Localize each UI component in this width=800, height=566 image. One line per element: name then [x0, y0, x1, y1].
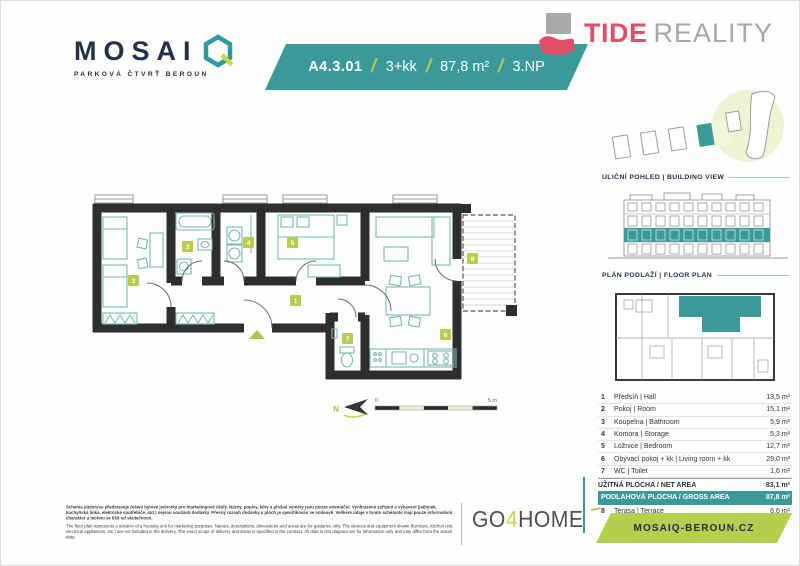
door-swings — [147, 259, 457, 328]
building-view-heading: ULIČNÍ POHLED | BUILDING VIEW — [602, 174, 790, 181]
site-plan-map — [606, 82, 788, 170]
svg-text:5 m: 5 m — [488, 398, 498, 404]
disclaimer-czech: Schéma půdorysu představuje řešení bytov… — [66, 505, 458, 522]
svg-text:0: 0 — [375, 398, 378, 404]
go4home-4: 4 — [506, 506, 518, 532]
unit-disposition: 3+kk — [386, 59, 417, 75]
mosaiq-wordmark: MOSAI — [74, 36, 198, 67]
table-row: 3Koupelna | Bathroom5,9 m² — [598, 417, 792, 429]
svg-text:6: 6 — [444, 332, 448, 339]
svg-text:2: 2 — [132, 278, 136, 285]
website-badge[interactable]: MOSAIQ-BEROUN.CZ — [596, 513, 792, 543]
furniture — [103, 213, 456, 367]
banner-separator: / — [423, 56, 433, 78]
disclaimer-english: The floor plan represents a solution of … — [66, 524, 458, 541]
unit-number: A4.3.01 — [308, 59, 362, 75]
unit-area: 87,8 m² — [440, 59, 489, 75]
svg-text:8: 8 — [471, 256, 475, 263]
table-row: 2Pokoj | Room15,1 m² — [598, 404, 792, 416]
north-arrow-icon: N — [333, 399, 368, 417]
banner-separator: / — [496, 56, 506, 78]
tide-reality-icon — [536, 10, 578, 56]
apartment-floor-plan: 1 2 3 4 5 6 7 8 N 0 5 m — [68, 181, 523, 421]
facade-window-marks — [95, 195, 437, 203]
mosaiq-subtitle: PARKOVÁ ČTVRŤ BEROUN — [74, 71, 233, 78]
room-badge-3: 3 — [182, 241, 193, 252]
table-row: 4Komora | Storage5,3 m² — [598, 429, 792, 441]
svg-text:N: N — [333, 405, 339, 414]
tide-reality-logo: TIDE REALITY — [536, 10, 773, 56]
table-row: 1Předsíň | Hall13,5 m² — [598, 392, 792, 404]
mosaiq-q-hexagon-icon — [203, 34, 233, 68]
banner-separator: / — [369, 56, 379, 78]
room-badge-5: 5 — [287, 237, 298, 248]
room-badge-2: 2 — [128, 275, 139, 286]
svg-text:3: 3 — [186, 244, 190, 251]
reality-text: REALITY — [654, 18, 774, 49]
scale-bar: 0 5 m — [375, 398, 497, 410]
svg-text:7: 7 — [346, 336, 350, 343]
disclaimer: Schéma půdorysu představuje řešení bytov… — [66, 505, 458, 541]
heading-rule — [717, 275, 790, 276]
floor-plan-heading: PLÁN PODLAŽÍ | FLOOR PLAN — [602, 272, 790, 279]
website-link[interactable]: MOSAIQ-BEROUN.CZ — [634, 523, 755, 534]
svg-text:1: 1 — [294, 298, 298, 305]
table-row: 6Obývací pokoj + kk | Living room + kk29… — [598, 453, 792, 465]
room-area-table: 1Předsíň | Hall13,5 m² 2Pokoj | Room15,1… — [598, 392, 792, 518]
mosaiq-logo: MOSAI PARKOVÁ ČTVRŤ BEROUN — [74, 34, 233, 78]
room-badge-6: 6 — [440, 329, 451, 340]
tide-text: TIDE — [584, 18, 648, 49]
svg-text:4: 4 — [247, 240, 251, 247]
room-badge-7: 7 — [342, 333, 353, 344]
table-row: 5Ložnice | Bedroom12,7 m² — [598, 441, 792, 453]
floorplan-sheet: MOSAI PARKOVÁ ČTVRŤ BEROUN A4.3.01 / 3+k… — [0, 0, 800, 566]
unit-floor: 3.NP — [513, 59, 545, 75]
svg-text:5: 5 — [291, 240, 295, 247]
room-badge-8: 8 — [467, 253, 478, 264]
net-area-row: UŽITNÁ PLOCHA / NET AREA83,1 m² — [598, 478, 792, 491]
heading-rule — [729, 177, 790, 178]
footer-divider — [461, 503, 462, 545]
floor-key-plan — [602, 286, 790, 388]
room-badge-1: 1 — [290, 295, 301, 306]
table-row: 7WC | Toilet1,6 m² — [598, 466, 792, 478]
go4home-logo: GO4HOME — [472, 506, 583, 533]
entrance-arrow-icon — [249, 330, 265, 339]
building-elevation — [602, 190, 792, 268]
gross-area-row: PODLAHOVÁ PLOCHA / GROSS AREA87,8 m² — [598, 491, 792, 505]
room-badge-4: 4 — [243, 237, 254, 248]
